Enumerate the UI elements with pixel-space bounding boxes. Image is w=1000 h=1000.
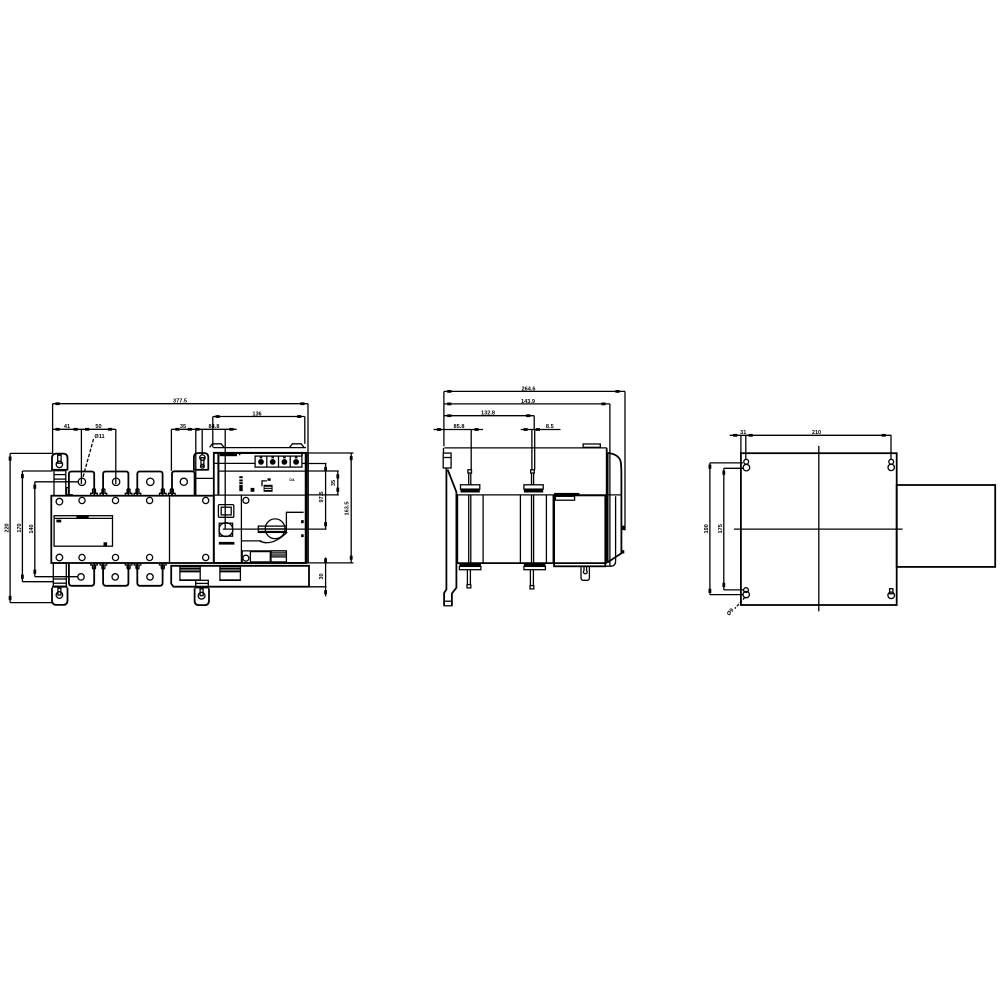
svg-text:175: 175 xyxy=(718,524,724,533)
svg-text:Ø11: Ø11 xyxy=(94,434,104,440)
svg-text:190: 190 xyxy=(704,524,710,533)
svg-text:220: 220 xyxy=(5,523,11,532)
svg-text:132.8: 132.8 xyxy=(481,411,495,417)
svg-text:31: 31 xyxy=(740,430,746,436)
svg-text:41: 41 xyxy=(64,424,70,430)
svg-text:35: 35 xyxy=(331,480,337,486)
svg-text:210: 210 xyxy=(812,430,821,436)
svg-text:35: 35 xyxy=(180,424,186,430)
svg-text:30: 30 xyxy=(319,573,325,579)
svg-text:8.5: 8.5 xyxy=(546,424,554,430)
svg-text:DA: DA xyxy=(289,478,295,482)
svg-text:377.5: 377.5 xyxy=(173,399,187,405)
svg-text:85.8: 85.8 xyxy=(454,424,465,430)
svg-text:143.9: 143.9 xyxy=(521,399,535,405)
svg-text:140: 140 xyxy=(29,524,35,533)
svg-text:84.8: 84.8 xyxy=(209,424,220,430)
svg-text:50: 50 xyxy=(95,424,101,430)
svg-text:170: 170 xyxy=(17,523,23,532)
svg-text:136: 136 xyxy=(252,411,261,417)
svg-text:163.5: 163.5 xyxy=(345,502,351,516)
svg-text:97.5: 97.5 xyxy=(319,492,325,503)
svg-text:264.6: 264.6 xyxy=(522,386,536,392)
